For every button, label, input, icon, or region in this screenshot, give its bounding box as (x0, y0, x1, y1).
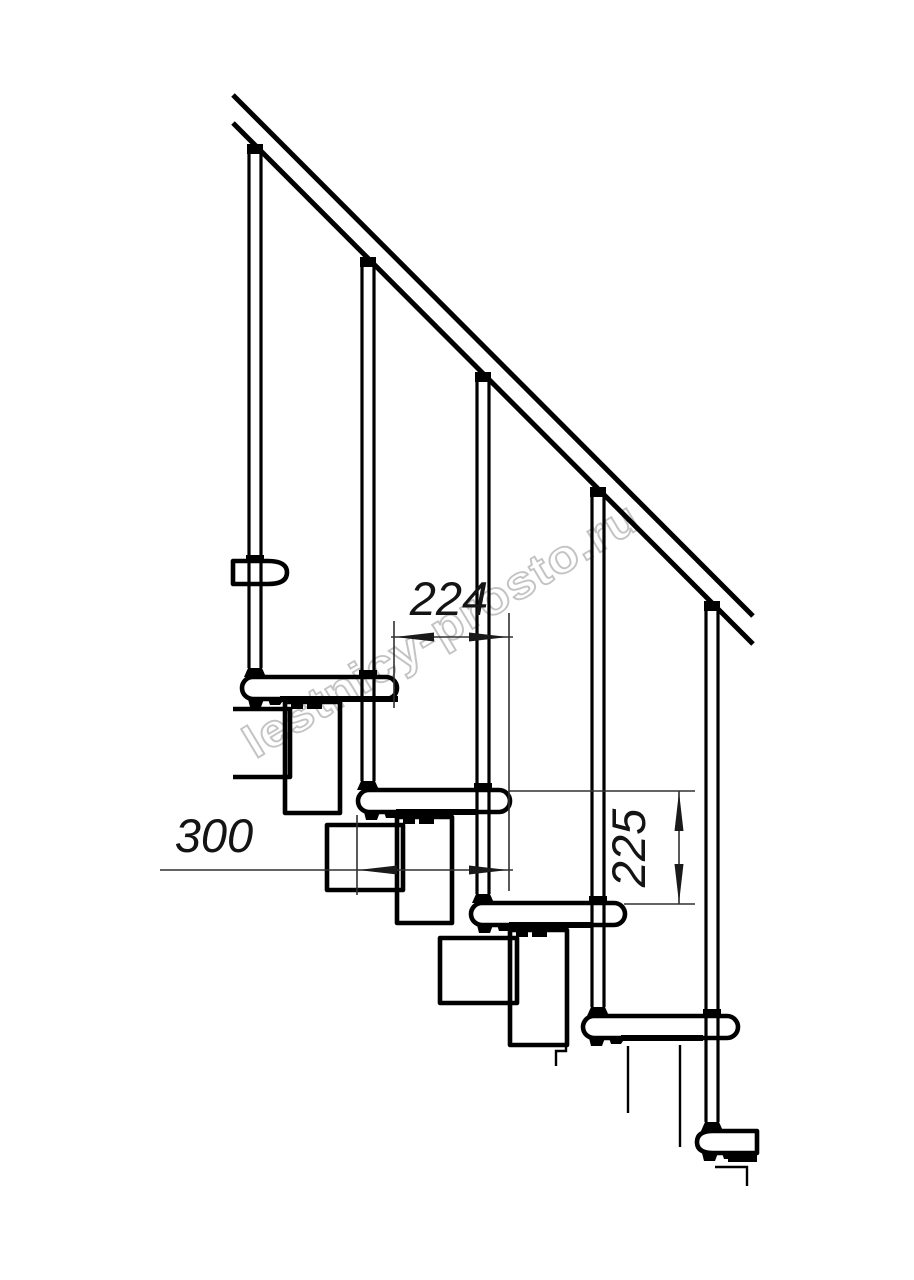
baluster-1 (244, 144, 266, 677)
watermark: lestnicy-prosto.ru (234, 491, 648, 768)
baluster-2 (357, 257, 379, 790)
dimension-label-300: 300 (175, 809, 253, 862)
baluster-top-cap (704, 601, 720, 611)
watermark-text: lestnicy-prosto.ru (234, 491, 648, 768)
dimension-label-224: 224 (409, 572, 488, 625)
dimension-label-225: 225 (602, 808, 655, 888)
drawing-svg: lestnicy-prosto.ru (0, 0, 914, 1280)
baluster-5 (701, 601, 723, 1131)
arrow-down (675, 864, 684, 903)
dimension-riser-height: 225 (509, 791, 695, 904)
handrail (233, 95, 753, 644)
staircase-technical-drawing: lestnicy-prosto.ru (0, 0, 914, 1280)
arrow-up (675, 792, 684, 831)
handrail-lower-line (233, 123, 753, 644)
baluster-top-cap (475, 372, 491, 382)
baluster-top-cap (360, 257, 376, 267)
handrail-upper-line (233, 95, 753, 616)
baluster-top-cap (247, 144, 263, 154)
baluster-top-cap (590, 487, 606, 497)
